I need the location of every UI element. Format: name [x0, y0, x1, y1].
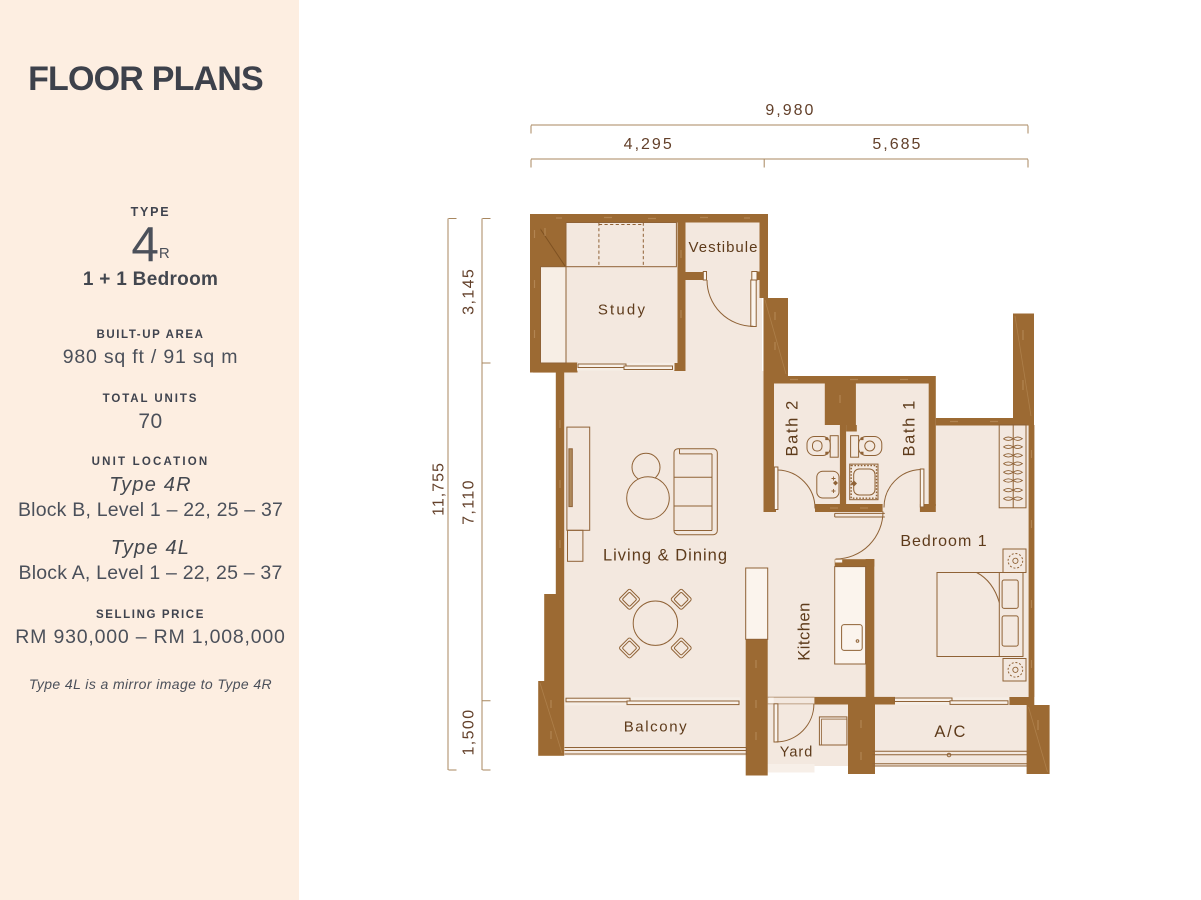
svg-text:A/C: A/C	[934, 723, 967, 741]
svg-text:Study: Study	[598, 302, 647, 319]
svg-text:Kitchen: Kitchen	[796, 602, 814, 661]
svg-text:9,980: 9,980	[765, 102, 815, 119]
svg-text:Yard: Yard	[780, 745, 814, 761]
svg-text:Living & Dining: Living & Dining	[603, 547, 728, 565]
svg-text:Balcony: Balcony	[624, 719, 689, 736]
svg-text:3,145: 3,145	[461, 268, 478, 315]
svg-text:Bedroom 1: Bedroom 1	[900, 533, 987, 550]
svg-text:Bath 1: Bath 1	[901, 399, 919, 456]
svg-text:4,295: 4,295	[624, 136, 674, 153]
svg-text:7,110: 7,110	[461, 479, 478, 525]
svg-text:5,685: 5,685	[872, 136, 922, 153]
svg-text:Bath 2: Bath 2	[784, 399, 802, 456]
svg-text:1,500: 1,500	[461, 708, 478, 755]
svg-text:Vestibule: Vestibule	[689, 239, 759, 256]
svg-text:11,755: 11,755	[431, 462, 448, 516]
